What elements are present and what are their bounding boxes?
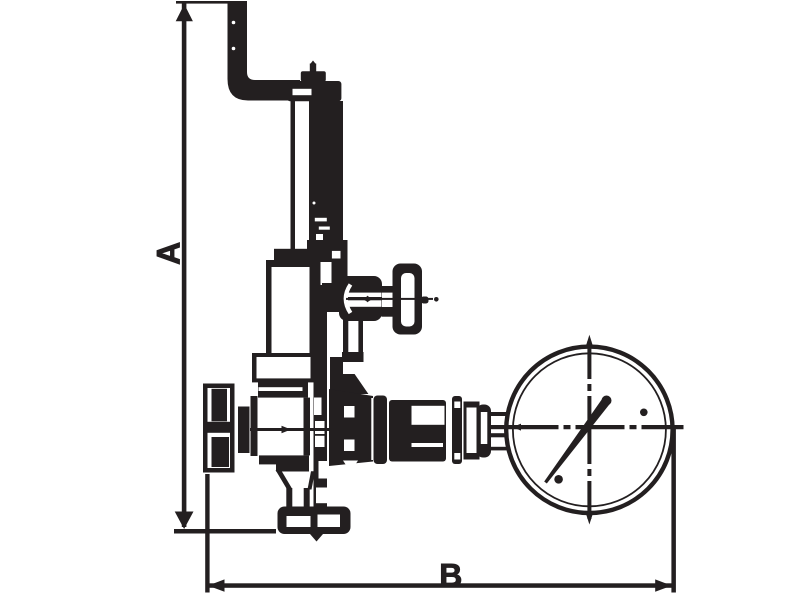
svg-text:B: B	[439, 557, 462, 593]
svg-text:A: A	[150, 242, 186, 265]
